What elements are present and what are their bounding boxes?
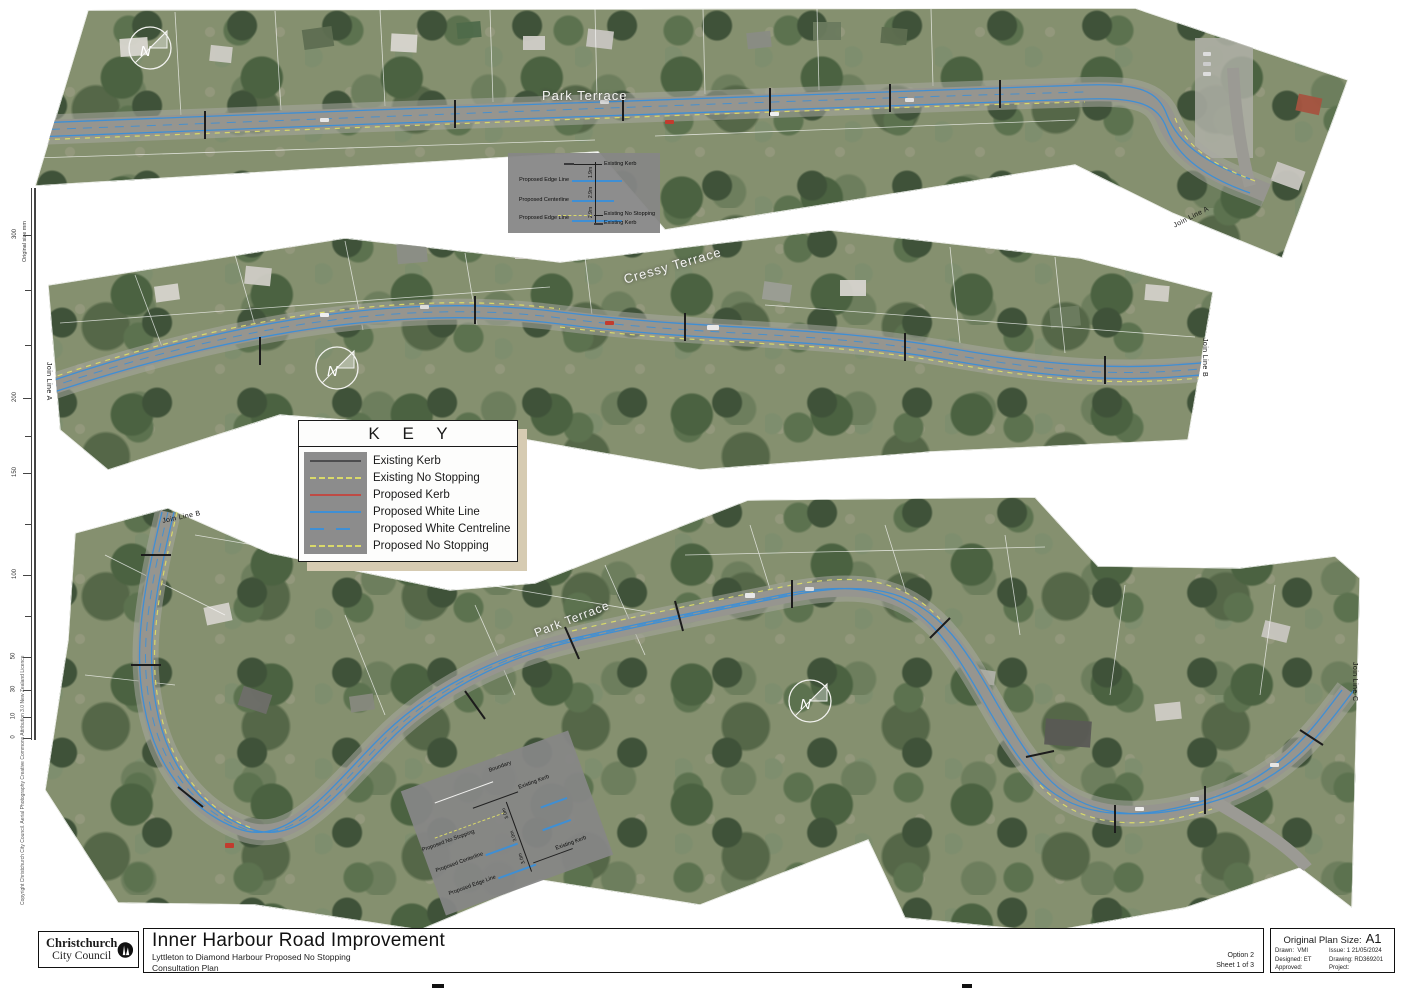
- callout-label-existing-kerb: Existing Kerb: [518, 774, 551, 791]
- plan-meta-grid: Drawn: VMI Issue: 1 21/05/2024 Designed:…: [1275, 947, 1390, 973]
- council-name-line1: Christchurch: [46, 937, 117, 950]
- street-label-park-terrace-top: Park Terrace: [542, 88, 627, 103]
- leader-line: [473, 791, 518, 808]
- plan-size-value: A1: [1366, 931, 1382, 946]
- ruler-tick-label: 150: [12, 467, 18, 477]
- ruler-tick-label: 200: [12, 392, 18, 402]
- council-logo-text: Christchurch City Council: [46, 937, 117, 962]
- ruler-tick: [25, 345, 31, 346]
- callout-label-centerline: Proposed Centerline: [508, 197, 569, 203]
- blue-line: [542, 819, 571, 831]
- aerial-panel-top: [35, 8, 1350, 260]
- kerb-mark: [564, 163, 574, 165]
- road-cressy-terrace: [48, 303, 1213, 394]
- dimension-value: 2.9m: [588, 207, 594, 218]
- blue-line: [572, 180, 622, 182]
- callout-label-edge1: Proposed Edge Line: [508, 177, 569, 183]
- page-frame-line: [34, 188, 36, 740]
- north-arrow-top: N: [127, 25, 173, 71]
- aerial-top-overlay: [35, 8, 1350, 260]
- kerb-mark: [594, 223, 603, 225]
- key-row: Existing Kerb: [299, 452, 517, 469]
- designed-cell: Designed: ET: [1275, 956, 1329, 965]
- boundary-line: [435, 781, 494, 803]
- blue-line: [572, 200, 614, 202]
- ruler-tick-label: 100: [12, 569, 18, 579]
- ruler-tick: [23, 235, 31, 236]
- copyright-notice: Copyright Christchurch City Council. Aer…: [20, 655, 26, 905]
- dimension-value: 1.9m: [588, 167, 594, 178]
- drawn-cell: Drawn: VMI: [1275, 947, 1329, 956]
- key-label: Proposed White Centreline: [373, 523, 510, 535]
- key-row: Proposed White Line: [299, 503, 517, 520]
- key-label: Proposed Kerb: [373, 489, 450, 501]
- approved-cell: Approved:: [1275, 964, 1329, 973]
- drawing-title: Inner Harbour Road Improvement: [152, 930, 1255, 952]
- key-label: Proposed No Stopping: [373, 540, 489, 552]
- ruler-tick: [25, 290, 31, 291]
- ruler-tick-label: 300: [12, 229, 18, 239]
- ruler-tick: [23, 398, 31, 399]
- drawing-cell: Drawing: RD369201: [1329, 956, 1390, 965]
- north-arrow-icon: N: [127, 25, 173, 71]
- ruler-line: [31, 188, 32, 740]
- leader-line: [574, 164, 602, 165]
- ruler-tick: [23, 473, 31, 474]
- proposed-white-centreline-swatch: [310, 528, 361, 530]
- plan-size-label: Original Plan Size:: [1283, 935, 1361, 946]
- ruler-tick-label: 30: [10, 686, 16, 693]
- ruler-caption: Original size mm: [22, 221, 28, 262]
- join-line-b-middle-label: Join Line B: [1201, 338, 1208, 377]
- key-row: Proposed White Centreline: [299, 520, 517, 537]
- ruler-tick-label: 50: [10, 653, 16, 660]
- blue-line: [485, 843, 517, 856]
- aerial-panel-bottom: [45, 495, 1360, 935]
- callout-label-existing-kerb2: Existing Kerb: [604, 220, 636, 226]
- council-logo-icon: [117, 937, 134, 963]
- key-row: Proposed No Stopping: [299, 537, 517, 554]
- existing-no-stopping-swatch: [310, 477, 361, 479]
- plan-info-block: Original Plan Size: A1 Drawn: VMI Issue:…: [1270, 928, 1395, 973]
- key-row: Proposed Kerb: [299, 486, 517, 503]
- aerial-middle-overlay: [45, 225, 1215, 475]
- svg-text:N: N: [800, 696, 811, 713]
- key-label: Proposed White Line: [373, 506, 480, 518]
- north-arrow-middle: N: [314, 345, 360, 391]
- blue-line: [540, 797, 567, 808]
- key-legend: K E Y Existing Kerb Existing No Stopping…: [298, 420, 518, 562]
- proposed-no-stopping-swatch: [310, 545, 361, 547]
- council-logo-box: Christchurch City Council: [38, 931, 139, 968]
- aerial-panel-middle: [45, 225, 1215, 475]
- buildings: [203, 602, 1290, 747]
- council-name-line2: City Council: [46, 950, 117, 962]
- ruler-tick: [23, 575, 31, 576]
- ruler-tick-label: 10: [10, 713, 16, 720]
- svg-text:N: N: [327, 363, 338, 380]
- crop-mark: [962, 984, 972, 988]
- key-row: Existing No Stopping: [299, 469, 517, 486]
- callout-label-existing-kerb: Existing Kerb: [604, 161, 636, 167]
- cross-section-callout-top: Existing Kerb Proposed Edge Line Propose…: [508, 153, 660, 233]
- leader-line: [533, 848, 573, 863]
- ruler-tick-label: 0: [11, 735, 17, 738]
- callout-label-boundary: Boundary: [488, 760, 512, 774]
- plan-sheet: Park Terrace Cressy Terrace Park Terrace…: [0, 0, 1401, 989]
- join-line-a-middle-label: Join Line A: [45, 362, 52, 401]
- crop-mark: [432, 984, 444, 988]
- ruler-tick: [25, 436, 31, 437]
- north-arrow-icon: N: [787, 678, 833, 724]
- road-park-terrace-south: [139, 512, 1354, 868]
- existing-kerb-swatch: [310, 460, 361, 462]
- project-cell: Project:: [1329, 964, 1390, 973]
- yellow-dash-line: [558, 215, 592, 216]
- join-line-c-bottom-label: Join Line C: [1351, 662, 1358, 701]
- north-arrow-bottom: N: [787, 678, 833, 724]
- drawing-subtitle: Lyttleton to Diamond Harbour Proposed No…: [152, 952, 1255, 963]
- plan-size-row: Original Plan Size: A1: [1275, 931, 1390, 946]
- aerial-bottom-overlay: [45, 495, 1360, 935]
- key-label: Existing Kerb: [373, 455, 441, 467]
- proposed-white-line-swatch: [310, 511, 361, 513]
- key-body: Existing Kerb Existing No Stopping Propo…: [299, 447, 517, 559]
- callout-label-proposed-edge-line: Proposed Edge Line: [444, 874, 497, 898]
- sheet-label: Sheet 1 of 3: [1216, 961, 1254, 971]
- drawing-subtitle2: Consultation Plan: [152, 963, 1255, 974]
- key-title: K E Y: [299, 421, 517, 447]
- callout-label-proposed-centerline: Proposed Centerline: [431, 851, 484, 875]
- svg-text:N: N: [140, 43, 151, 60]
- callout-label-existing-no-stopping: Existing No Stopping: [604, 211, 655, 217]
- ruler-tick: [25, 524, 31, 525]
- key-label: Existing No Stopping: [373, 472, 480, 484]
- option-label: Option 2: [1216, 951, 1254, 961]
- title-block: Inner Harbour Road Improvement Lyttleton…: [143, 928, 1264, 973]
- north-arrow-icon: N: [314, 345, 360, 391]
- dimension-line: [595, 162, 596, 223]
- issue-cell: Issue: 1 21/05/2024: [1329, 947, 1390, 956]
- dimension-value: 2.9m: [588, 187, 594, 198]
- proposed-kerb-swatch: [310, 494, 361, 496]
- option-sheet-block: Option 2 Sheet 1 of 3: [1216, 951, 1254, 971]
- ruler-tick: [25, 616, 31, 617]
